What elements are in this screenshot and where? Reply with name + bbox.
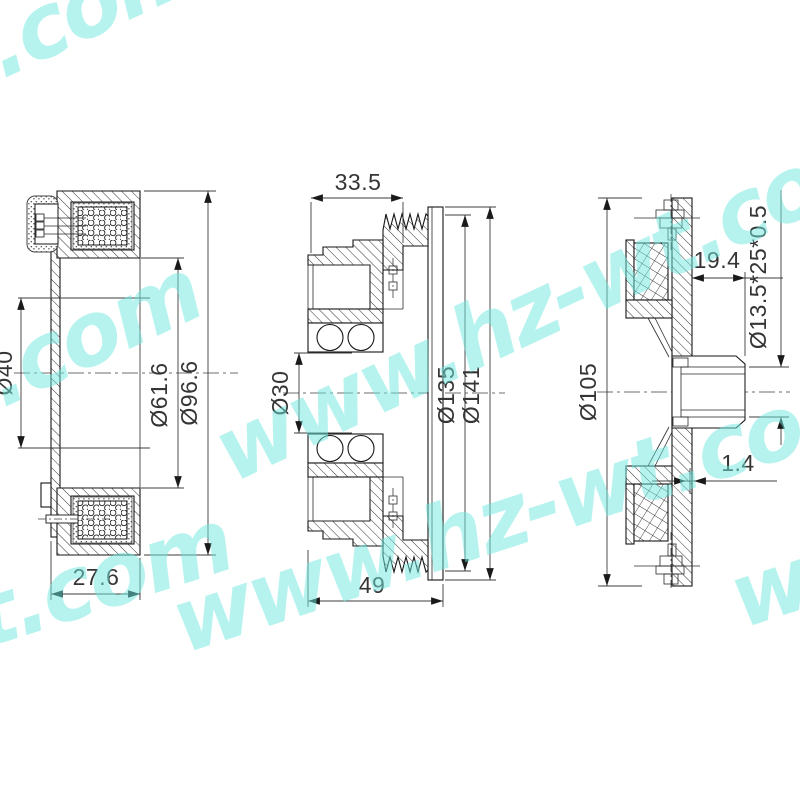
splined-hub — [672, 356, 745, 428]
dim-pulley-hub-width: 33.5 — [335, 169, 382, 195]
dim-spline-spec: Ø13.5*25*0.5 — [745, 205, 771, 349]
dim-bearing-bore: Ø30 — [267, 371, 293, 416]
dim-pulley-total-width: 49 — [359, 572, 386, 598]
belt-grooves-top — [383, 214, 428, 270]
dim-hub-outer-diameter: Ø105 — [575, 363, 601, 421]
coil-winding-section-bottom — [78, 501, 127, 539]
rubber-damper-top — [634, 243, 668, 300]
pulley-section-view: 33.5 Ø30 Ø135 Ø141 49 — [267, 169, 505, 607]
dim-coil-width: 27.6 — [73, 564, 120, 590]
dim-coil-inner-diameter: Ø61.6 — [146, 362, 172, 427]
dim-groove-diameter: Ø135 — [433, 366, 459, 424]
coil-side-view: Ø40 Ø61.6 Ø96.6 27.6 — [0, 191, 238, 600]
clutch-hub-view: Ø105 19.4 Ø13.5*25*0.5 1.4 — [575, 190, 790, 590]
dim-coil-outer-diameter: Ø96.6 — [176, 360, 202, 425]
dim-pulley-outer-diameter: Ø141 — [458, 366, 484, 424]
dim-hub-depth: 19.4 — [694, 247, 741, 273]
belt-grooves-bottom — [383, 516, 428, 572]
rubber-damper-bottom — [634, 484, 668, 541]
clutch-assembly-drawing: Ø40 Ø61.6 Ø96.6 27.6 — [0, 0, 800, 800]
anti-rotation-tab — [41, 483, 51, 507]
dim-air-gap: 1.4 — [721, 450, 754, 476]
dim-coil-bore: Ø40 — [0, 351, 17, 396]
technical-drawing-canvas: Ø40 Ø61.6 Ø96.6 27.6 — [0, 0, 800, 800]
